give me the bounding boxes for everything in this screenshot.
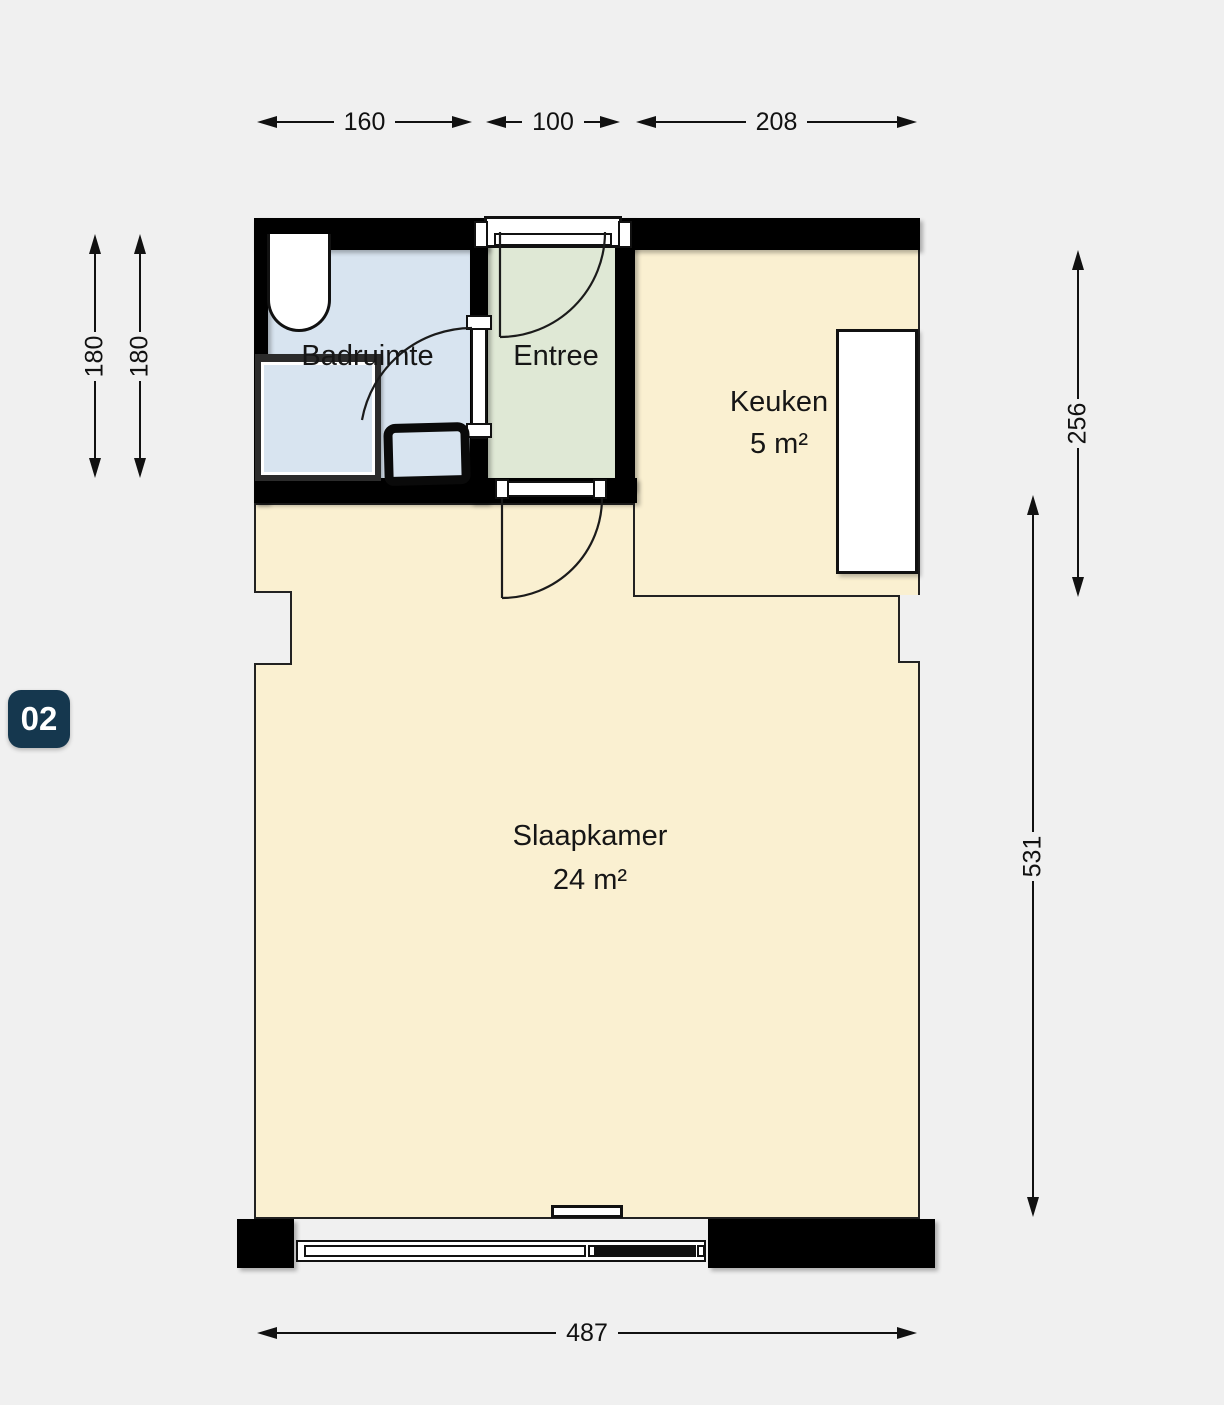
window-left-panel: [304, 1245, 586, 1257]
room-slaapkamer: [254, 503, 920, 1219]
arrow-right-icon: [452, 116, 472, 128]
toilet: [383, 422, 471, 486]
arrow-left-icon: [257, 116, 277, 128]
dimension-value: 160: [334, 110, 396, 135]
floor-badge[interactable]: 02: [8, 690, 70, 748]
dimension-value: 256: [1054, 403, 1103, 445]
entrance-door-jamb-left: [474, 221, 488, 248]
arrow-up-icon: [89, 234, 101, 254]
arrow-down-icon: [1072, 577, 1084, 597]
wall-top-right: [618, 218, 920, 250]
dimension-top-208: 208: [636, 110, 917, 134]
slaapkamer-door-frame: [497, 481, 605, 497]
dimension-right-531: 531: [1020, 495, 1046, 1217]
arrow-left-icon: [636, 116, 656, 128]
badruimte-door-frame: [471, 315, 487, 439]
wall-bottom-right-block: [708, 1219, 935, 1268]
dimension-bottom-487: 487: [257, 1321, 917, 1345]
dimension-value: 208: [746, 110, 808, 135]
arrow-up-icon: [134, 234, 146, 254]
arrow-right-icon: [897, 116, 917, 128]
badruimte-door-jamb-bottom: [466, 423, 492, 438]
entrance-door-frame-inner: [494, 233, 612, 246]
dimension-top-160: 160: [257, 110, 472, 134]
label-keuken-area: 5 m²: [704, 428, 854, 461]
label-keuken: Keuken: [704, 386, 854, 419]
right-wall-notch: [898, 595, 920, 663]
window-end-cap: [697, 1245, 705, 1257]
window-vent: [551, 1205, 623, 1218]
window-mid-cap: [588, 1245, 596, 1257]
dimension-top-100: 100: [486, 110, 620, 134]
arrow-up-icon: [1027, 495, 1039, 515]
window-right-panel: [596, 1245, 696, 1257]
slaapkamer-door-jamb-right: [593, 479, 607, 499]
entrance-door-jamb-right: [618, 221, 632, 248]
label-slaapkamer-area: 24 m²: [490, 864, 690, 897]
badruimte-door-jamb-top: [466, 315, 492, 330]
floor-plan-canvas: Badruimte Entree Keuken 5 m² Slaapkamer …: [0, 0, 1224, 1405]
label-slaapkamer: Slaapkamer: [490, 820, 690, 853]
arrow-down-icon: [1027, 1197, 1039, 1217]
arrow-left-icon: [257, 1327, 277, 1339]
wall-bottom-left-block: [237, 1219, 294, 1268]
dimension-right-256: 256: [1065, 250, 1091, 597]
arrow-right-icon: [897, 1327, 917, 1339]
arrow-down-icon: [89, 458, 101, 478]
dimension-value: 100: [522, 110, 584, 135]
dimension-value: 487: [556, 1321, 618, 1346]
slaapkamer-door-jamb-left: [495, 479, 509, 499]
dimension-value: 180: [71, 335, 120, 377]
label-badruimte: Badruimte: [280, 340, 455, 373]
arrow-down-icon: [134, 458, 146, 478]
arrow-up-icon: [1072, 250, 1084, 270]
left-wall-notch: [254, 591, 292, 665]
label-entree: Entree: [481, 340, 631, 373]
dimension-value: 531: [1009, 835, 1058, 877]
arrow-left-icon: [486, 116, 506, 128]
dimension-value: 180: [116, 335, 165, 377]
dimension-left-180-outer: 180: [82, 234, 108, 478]
arrow-right-icon: [600, 116, 620, 128]
dimension-left-180-inner: 180: [127, 234, 153, 478]
washbasin: [267, 234, 331, 332]
